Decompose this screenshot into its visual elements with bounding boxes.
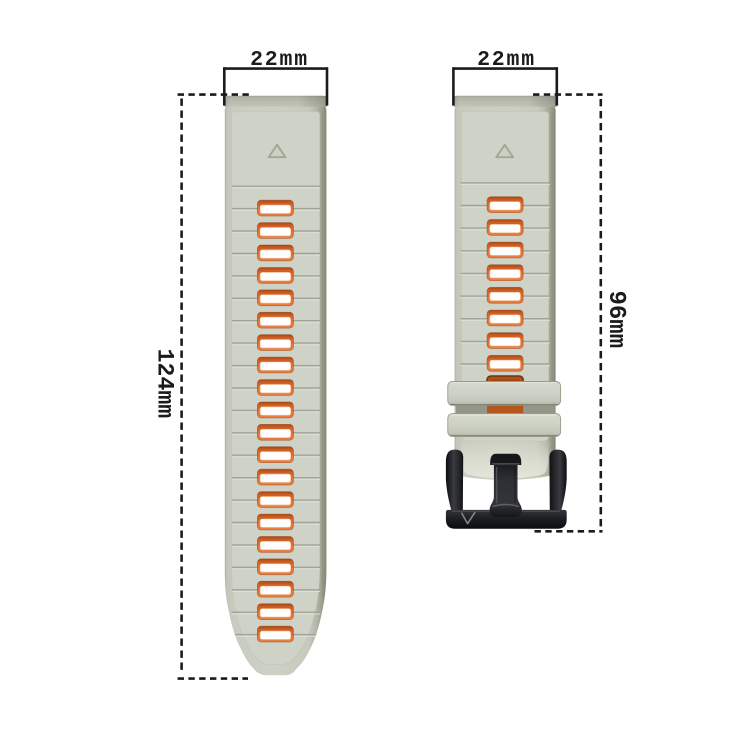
svg-text:96mm: 96mm <box>602 290 629 348</box>
svg-text:124mm: 124mm <box>152 349 178 419</box>
